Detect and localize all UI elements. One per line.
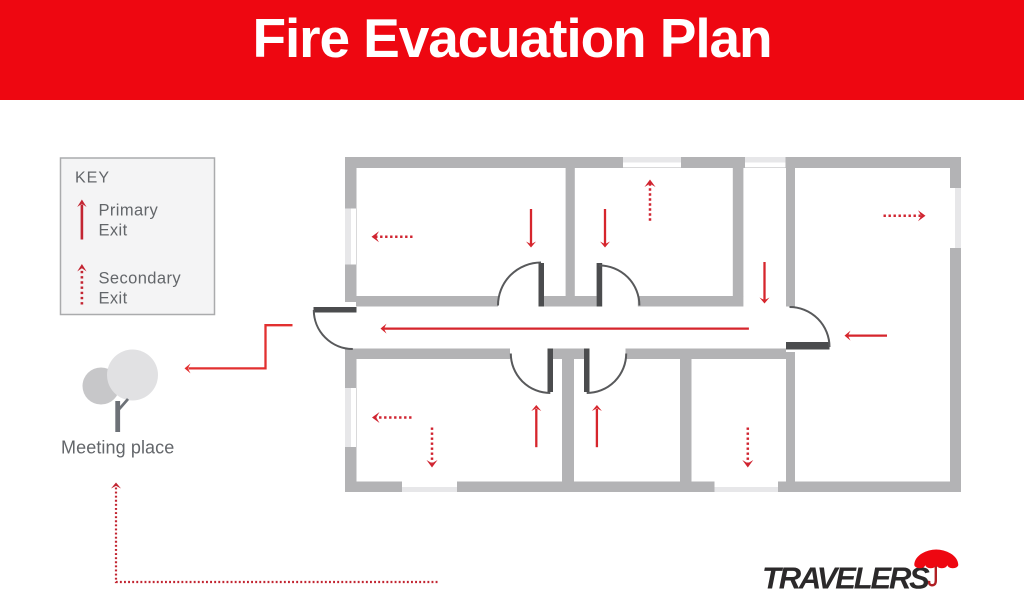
svg-text:Secondary: Secondary bbox=[99, 270, 182, 288]
svg-text:KEY: KEY bbox=[75, 170, 110, 187]
svg-text:Meeting place: Meeting place bbox=[61, 438, 174, 458]
svg-text:Primary: Primary bbox=[99, 202, 159, 220]
svg-text:TRAVELERS: TRAVELERS bbox=[762, 561, 930, 596]
svg-text:Exit: Exit bbox=[99, 290, 128, 308]
svg-text:Exit: Exit bbox=[99, 222, 128, 240]
